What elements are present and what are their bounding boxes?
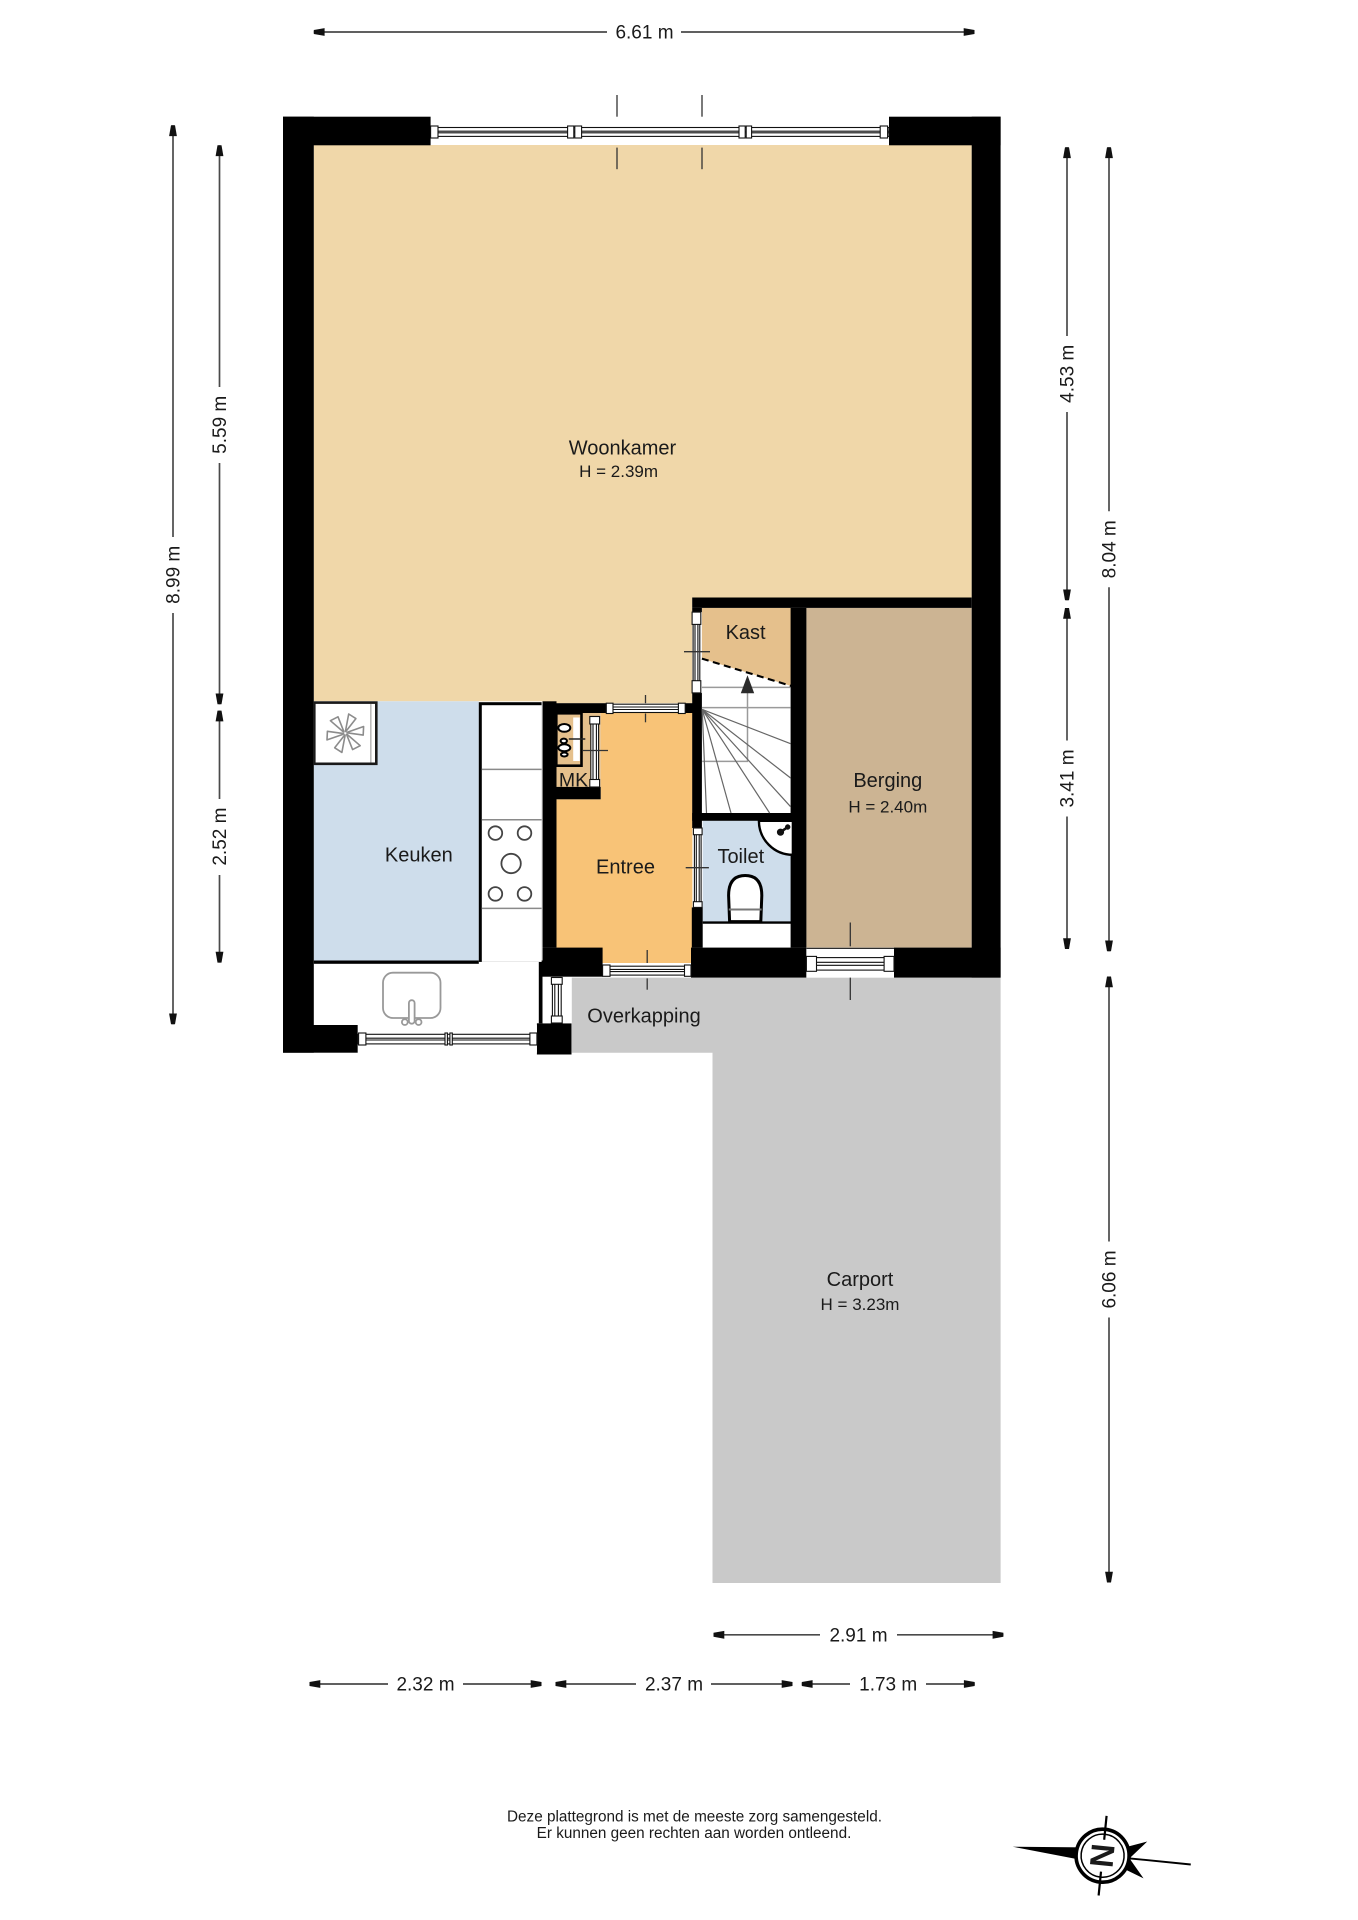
svg-text:Woonkamer: Woonkamer [569, 438, 677, 460]
svg-text:Overkapping: Overkapping [587, 1006, 700, 1028]
svg-text:4.53 m: 4.53 m [1058, 345, 1079, 403]
svg-text:5.59 m: 5.59 m [210, 396, 231, 454]
svg-text:2.37 m: 2.37 m [645, 1675, 703, 1696]
svg-text:8.04 m: 8.04 m [1100, 520, 1121, 578]
svg-text:Berging: Berging [853, 770, 922, 792]
svg-text:Carport: Carport [827, 1269, 894, 1291]
svg-text:Entree: Entree [596, 857, 655, 879]
svg-text:Er kunnen geen rechten aan wor: Er kunnen geen rechten aan worden ontlee… [537, 1825, 852, 1842]
svg-text:2.91 m: 2.91 m [829, 1625, 887, 1646]
svg-text:2.32 m: 2.32 m [396, 1675, 454, 1696]
svg-text:Deze plattegrond is met de mee: Deze plattegrond is met de meeste zorg s… [507, 1809, 882, 1826]
svg-text:1.73 m: 1.73 m [859, 1675, 917, 1696]
svg-text:8.99 m: 8.99 m [164, 546, 185, 604]
svg-text:Keuken: Keuken [385, 845, 453, 867]
svg-text:MK: MK [559, 770, 588, 792]
svg-text:H = 2.40m: H = 2.40m [848, 798, 927, 817]
svg-text:3.41 m: 3.41 m [1058, 749, 1079, 807]
svg-text:2.52 m: 2.52 m [210, 808, 231, 866]
svg-text:6.06 m: 6.06 m [1100, 1250, 1121, 1308]
svg-text:H = 3.23m: H = 3.23m [821, 1295, 900, 1314]
svg-text:H = 2.39m: H = 2.39m [579, 462, 658, 481]
svg-text:Toilet: Toilet [717, 846, 764, 868]
svg-text:N: N [1083, 1842, 1122, 1869]
svg-text:Kast: Kast [726, 622, 766, 644]
svg-text:6.61 m: 6.61 m [615, 23, 673, 44]
